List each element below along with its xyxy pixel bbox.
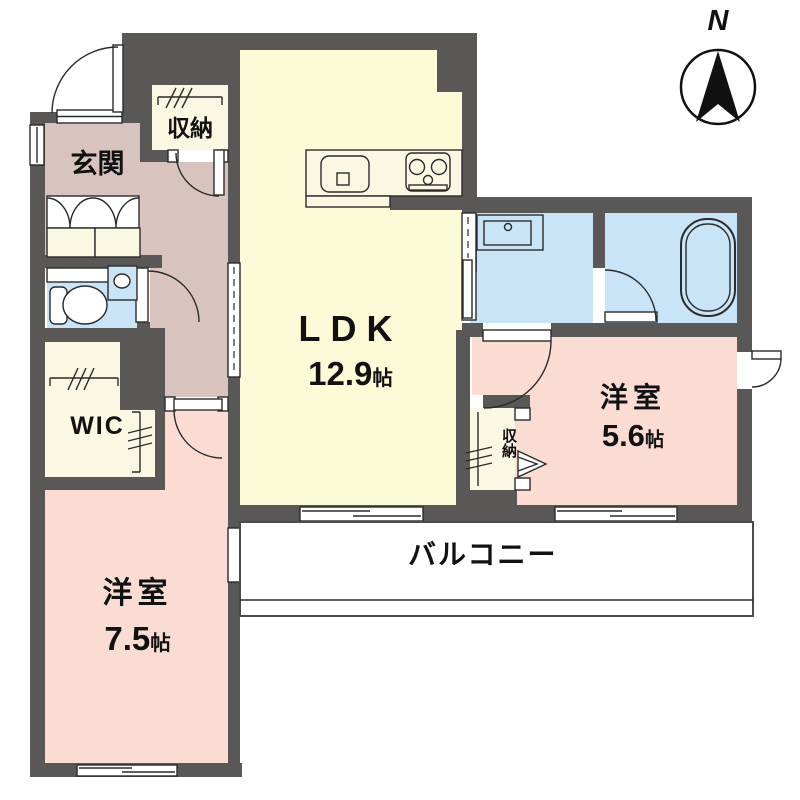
wall xyxy=(120,342,165,410)
doorway xyxy=(593,268,605,323)
bedroom-5-6-area-unit: 帖 xyxy=(645,430,664,451)
toilet-door-leaf xyxy=(136,268,148,322)
wall xyxy=(437,33,462,92)
wall xyxy=(122,85,152,123)
wall xyxy=(593,213,605,268)
wall xyxy=(462,197,752,213)
bedroom-5-6-label: 洋室 xyxy=(528,383,738,412)
ldk-area: 12.9帖 xyxy=(238,357,463,392)
kitchen-counter xyxy=(306,150,462,196)
hallway-floor xyxy=(150,268,228,330)
door-jamb xyxy=(515,478,530,490)
bedroom-7-5-label: 洋室 xyxy=(40,578,235,610)
bedroom-7-5-door-leaf xyxy=(174,399,222,410)
shoe-cabinet-doors xyxy=(47,196,139,228)
bedroom-closet-label: 収納 xyxy=(486,407,516,479)
exterior-door-swing xyxy=(752,358,781,387)
north-arrow-icon xyxy=(696,51,740,122)
entrance-label: 玄関 xyxy=(45,150,150,178)
entrance-door-leaf xyxy=(113,45,123,112)
shoe-cabinet xyxy=(95,228,140,257)
bedroom-5-6-area-value: 5.6 xyxy=(602,418,645,453)
compass xyxy=(681,50,755,124)
compass-north-label: N xyxy=(700,6,736,36)
bedroom-7-5-window xyxy=(77,765,177,776)
ldk-floor xyxy=(240,50,437,505)
wall xyxy=(45,477,165,490)
wall xyxy=(122,50,240,85)
wall xyxy=(390,196,462,210)
ldk-area-unit: 帖 xyxy=(372,367,392,390)
shoe-cabinet xyxy=(47,228,95,257)
wall xyxy=(137,322,150,330)
ldk-label: LDK xyxy=(238,310,463,348)
bathroom-door-leaf xyxy=(605,312,657,322)
wall xyxy=(30,328,165,342)
entrance-door-swing xyxy=(52,47,118,113)
toilet-bowl-icon xyxy=(63,286,107,324)
ldk-area-value: 12.9 xyxy=(308,355,372,392)
kitchen-counter-edge xyxy=(306,196,390,207)
wall xyxy=(122,33,477,50)
doorway xyxy=(470,395,483,408)
toilet-shelf xyxy=(47,268,110,282)
bathroom-floor xyxy=(605,213,737,323)
bedroom-7-5-area-value: 7.5 xyxy=(104,620,150,657)
hand-basin-icon xyxy=(114,274,130,288)
floor-plan: N 玄関 収納 LDK 12.9帖 洋室 7.5帖 洋室 5.6帖 WIC 収納… xyxy=(0,0,800,800)
bedroom-5-6-area: 5.6帖 xyxy=(528,420,738,453)
bedroom-7-5-area-unit: 帖 xyxy=(150,632,170,655)
closet-door-leaf xyxy=(214,150,224,195)
sliding-door-panel xyxy=(463,260,472,318)
bedroom-7-5-area: 7.5帖 xyxy=(40,622,235,657)
wall xyxy=(30,112,45,777)
bedroom-5-6-window xyxy=(555,507,677,521)
wall xyxy=(462,33,477,213)
doorway xyxy=(737,352,752,389)
wic-label: WIC xyxy=(40,413,155,439)
entrance-closet-label: 収納 xyxy=(150,116,230,140)
ldk-window xyxy=(300,507,423,521)
wall xyxy=(228,85,240,263)
exterior-door-leaf xyxy=(752,351,781,359)
bedroom-5-6-door-leaf xyxy=(483,330,551,341)
wall xyxy=(456,490,517,507)
balcony-label: バルコニー xyxy=(408,540,638,569)
